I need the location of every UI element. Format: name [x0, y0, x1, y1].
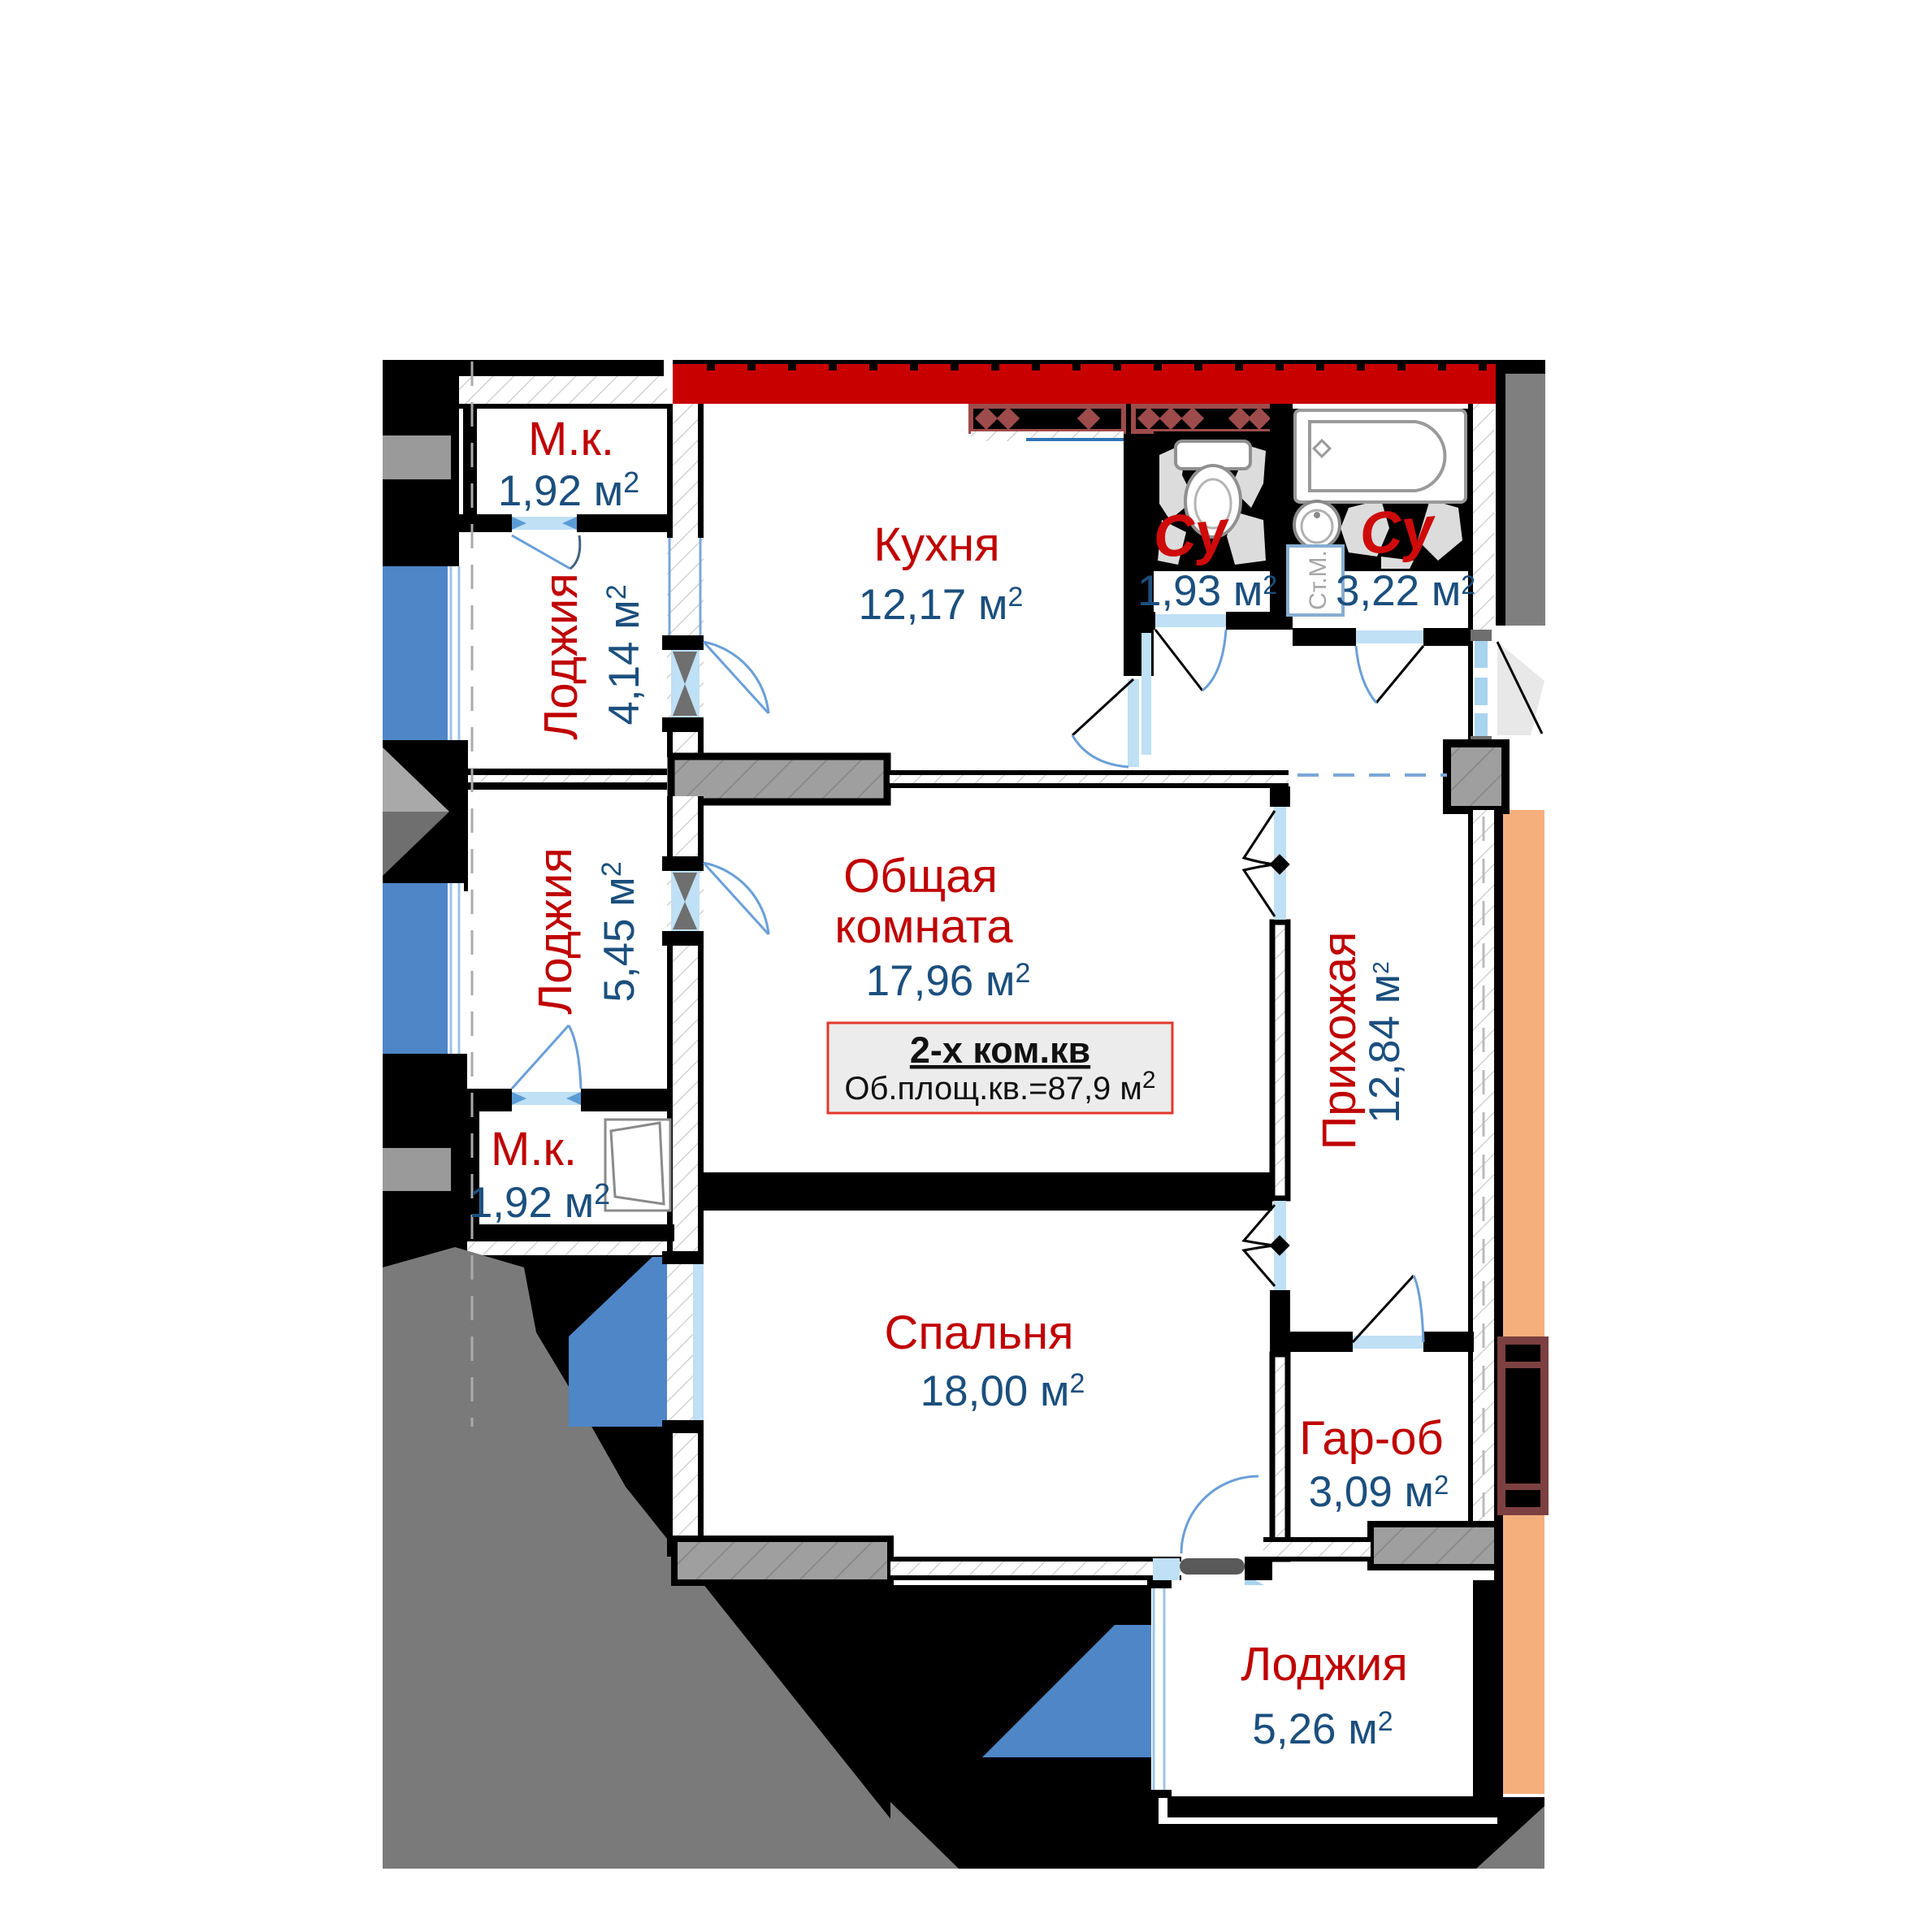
svg-text:Ст.М.: Ст.М.	[1305, 550, 1332, 610]
svg-text:М.к.: М.к.	[528, 413, 614, 466]
svg-text:3,09 м2: 3,09 м2	[1309, 1468, 1449, 1516]
svg-text:18,00 м2: 18,00 м2	[921, 1367, 1085, 1415]
svg-text:Спальня: Спальня	[884, 1306, 1073, 1359]
svg-text:Лоджия: Лоджия	[529, 847, 582, 1015]
svg-text:4,14 м2: 4,14 м2	[600, 584, 648, 725]
svg-text:12,84 м2: 12,84 м2	[1361, 961, 1409, 1123]
svg-text:Об.площ.кв.=87,9 м2: Об.площ.кв.=87,9 м2	[844, 1067, 1155, 1107]
svg-text:2-х ком.кв: 2-х ком.кв	[910, 1029, 1090, 1071]
svg-text:Общая: Общая	[843, 850, 998, 903]
svg-text:Лоджия: Лоджия	[1241, 1638, 1408, 1691]
svg-text:Лоджия: Лоджия	[535, 573, 587, 740]
svg-text:12,17 м2: 12,17 м2	[859, 581, 1024, 629]
svg-text:Су: Су	[1357, 495, 1441, 568]
svg-text:Прихожая: Прихожая	[1313, 932, 1366, 1150]
svg-text:5,26 м2: 5,26 м2	[1252, 1705, 1393, 1753]
svg-text:1,92 м2: 1,92 м2	[469, 1177, 610, 1227]
svg-text:Су: Су	[1150, 498, 1235, 571]
svg-text:1,92 м2: 1,92 м2	[498, 466, 639, 515]
svg-text:Кухня: Кухня	[873, 518, 999, 571]
svg-text:комната: комната	[834, 900, 1013, 953]
svg-text:Гар-об: Гар-об	[1299, 1412, 1443, 1465]
svg-text:М.к.: М.к.	[491, 1123, 577, 1176]
svg-text:3,22 м2: 3,22 м2	[1336, 567, 1475, 615]
svg-text:5,45 м2: 5,45 м2	[596, 861, 643, 1002]
svg-text:17,96 м2: 17,96 м2	[866, 957, 1031, 1005]
svg-text:1,93 м2: 1,93 м2	[1137, 567, 1277, 615]
